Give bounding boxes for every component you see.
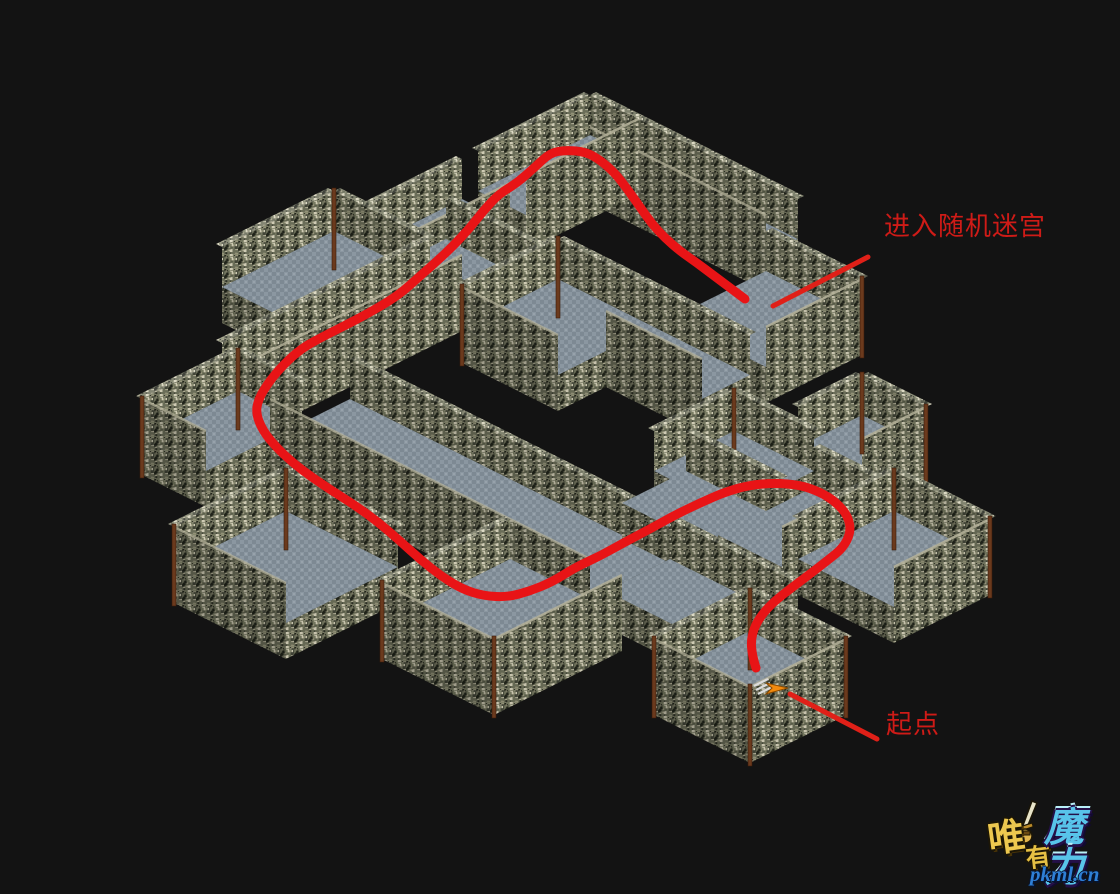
annotated-dungeon-map: 进入随机迷宫 起点 唯 有 魔力 pkml.cn xyxy=(0,0,1120,894)
wall-pillar-seam xyxy=(988,516,992,598)
annotation-label-start: 起点 xyxy=(886,712,940,738)
wall-pillar-seam xyxy=(492,636,496,718)
site-watermark-logo: 唯 有 魔力 pkml.cn xyxy=(986,800,1118,892)
wall-pillar-seam xyxy=(892,468,896,550)
wall-pillar-seam xyxy=(860,276,864,358)
annotation-label-enter-maze: 进入随机迷宫 xyxy=(884,214,1046,240)
wall-pillar-seam xyxy=(860,372,864,454)
wall-pillar-seam xyxy=(924,404,928,486)
wall-pillar-seam xyxy=(236,348,240,430)
wall-pillar-seam xyxy=(460,284,464,366)
wall-pillar-seam xyxy=(556,236,560,318)
logo-site-url: pkml.cn xyxy=(1030,864,1099,885)
maze-map-canvas xyxy=(0,0,1120,894)
wall-pillar-seam xyxy=(748,684,752,766)
wall-pillar-seam xyxy=(652,636,656,718)
wall-pillar-seam xyxy=(380,580,384,662)
wall-pillar-seam xyxy=(172,524,176,606)
wall-pillar-seam xyxy=(284,468,288,550)
wall-pillar-seam xyxy=(140,396,144,478)
wall-pillar-seam xyxy=(844,636,848,718)
logo-char-wei: 唯 xyxy=(986,818,1028,860)
wall-pillar-seam xyxy=(332,188,336,270)
